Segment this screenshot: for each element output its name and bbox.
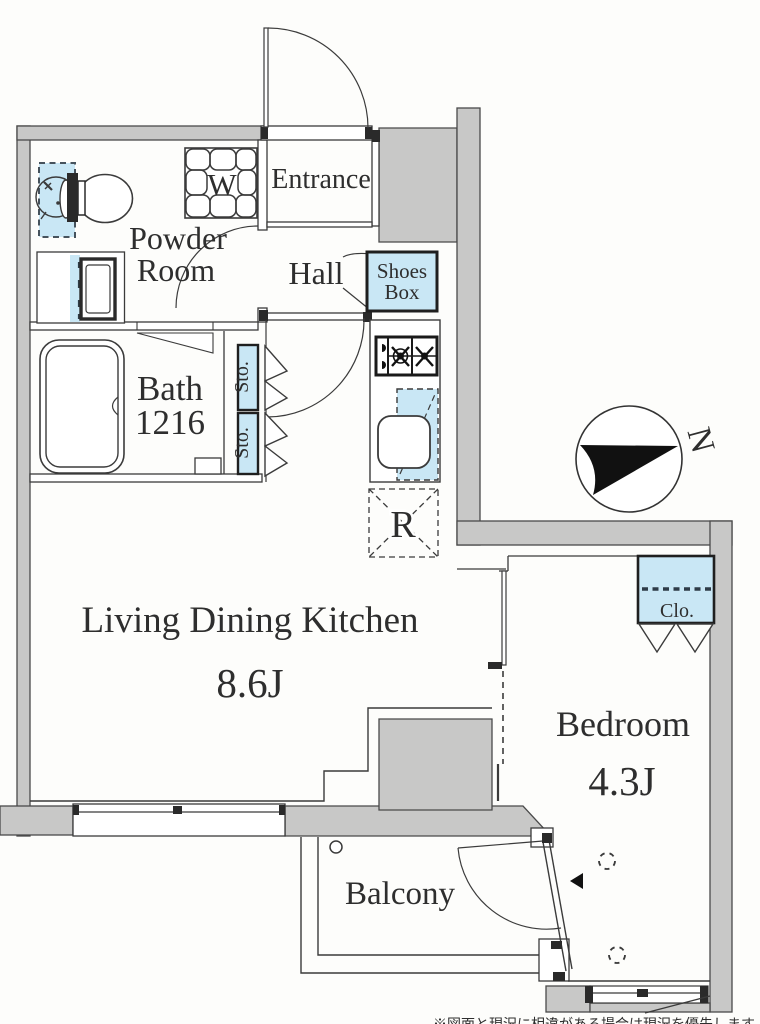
svg-text:1216: 1216: [135, 403, 205, 442]
svg-text:R: R: [390, 504, 416, 546]
svg-text:W: W: [207, 167, 237, 202]
svg-text:Hall: Hall: [288, 255, 343, 291]
svg-text:Entrance: Entrance: [271, 164, 371, 195]
svg-text:Living Dining Kitchen: Living Dining Kitchen: [81, 600, 418, 641]
svg-text:Sto.: Sto.: [231, 361, 253, 393]
svg-text:※図面と現況に相違がある場合は現況を優先します。: ※図面と現況に相違がある場合は現況を優先します。: [433, 1017, 760, 1024]
svg-text:Bedroom: Bedroom: [556, 704, 690, 744]
svg-text:Balcony: Balcony: [345, 876, 455, 912]
svg-text:Clo.: Clo.: [660, 600, 694, 622]
svg-text:4.3J: 4.3J: [588, 758, 655, 804]
svg-text:Sto.: Sto.: [231, 427, 253, 459]
svg-text:8.6J: 8.6J: [216, 660, 283, 706]
svg-text:Powder: Powder: [129, 220, 227, 256]
svg-text:Room: Room: [137, 252, 215, 288]
svg-text:Box: Box: [384, 280, 420, 304]
